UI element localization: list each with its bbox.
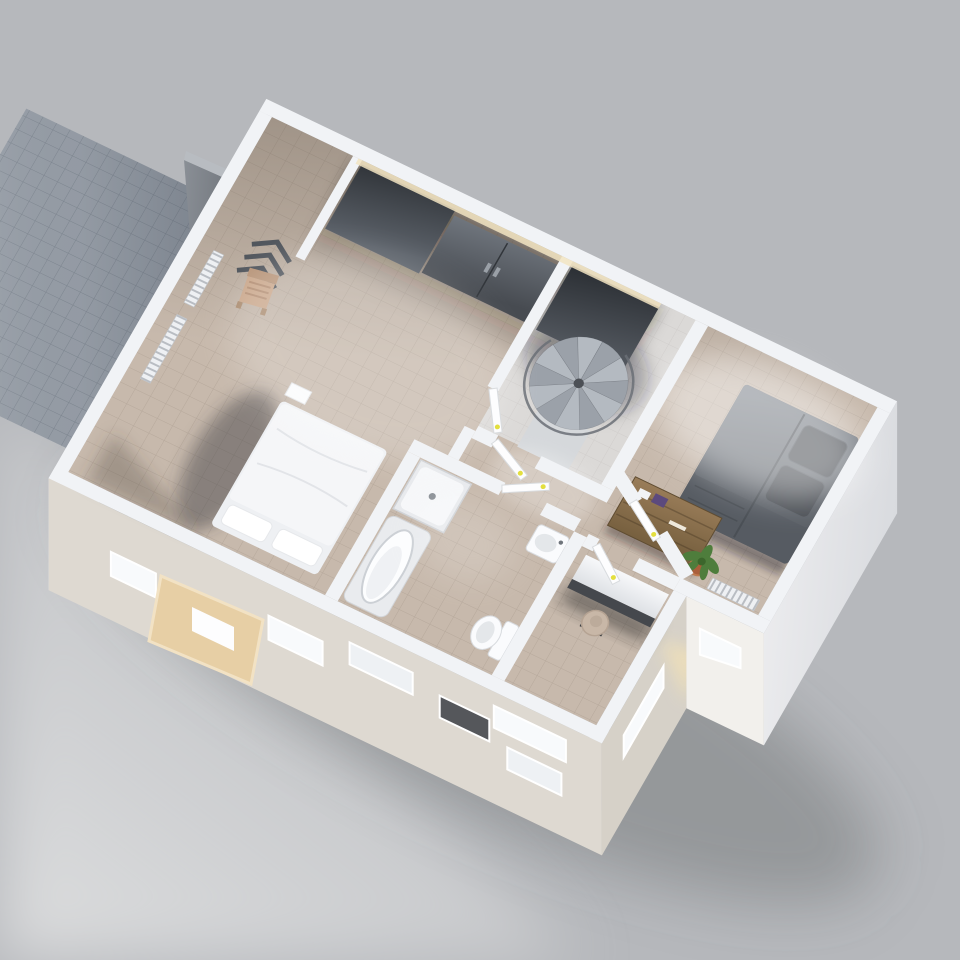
floorplan-render <box>0 0 960 960</box>
floorplan-render-viewport <box>0 0 960 960</box>
